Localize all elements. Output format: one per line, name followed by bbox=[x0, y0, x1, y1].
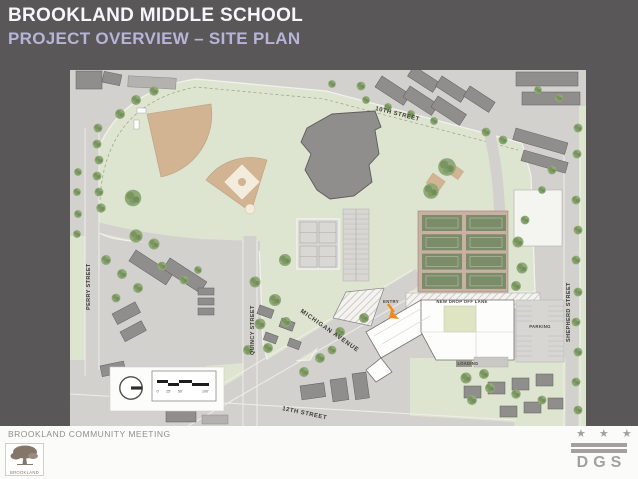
dgs-flag-bar-top bbox=[571, 443, 627, 447]
slide-subtitle: PROJECT OVERVIEW – SITE PLAN bbox=[8, 28, 303, 50]
street-label-quincy: QUINCY STREET bbox=[250, 305, 256, 355]
basketball-courts bbox=[297, 219, 339, 269]
scale-50: 50' bbox=[178, 390, 183, 394]
slide-header: BROOKLAND MIDDLE SCHOOL PROJECT OVERVIEW… bbox=[8, 4, 303, 50]
label-parking: PARKING bbox=[529, 324, 551, 329]
right-parking-lot bbox=[516, 300, 564, 362]
tennis-courts bbox=[418, 211, 508, 292]
center-parking bbox=[343, 209, 369, 281]
slide-title: BROOKLAND MIDDLE SCHOOL bbox=[8, 4, 303, 28]
legend: 0' 25' 50' 100' bbox=[110, 367, 224, 411]
dgs-flag-bar-bottom bbox=[571, 449, 627, 453]
scale-0: 0' bbox=[157, 390, 160, 394]
scale-bar: 0' 25' 50' 100' bbox=[152, 371, 216, 401]
brookland-logo: BROOKLAND bbox=[5, 443, 44, 476]
dgs-logo: ★ ★ ★ DGS bbox=[571, 428, 627, 471]
dgs-logo-label: DGS bbox=[576, 455, 627, 471]
label-entry: ENTRY bbox=[383, 299, 399, 304]
slide: BROOKLAND MIDDLE SCHOOL PROJECT OVERVIEW… bbox=[0, 0, 638, 479]
scale-25: 25' bbox=[166, 390, 171, 394]
brookland-logo-label: BROOKLAND bbox=[6, 470, 43, 475]
street-label-perry: PERRY STREET bbox=[86, 263, 92, 310]
north-arrow-icon bbox=[120, 377, 142, 399]
scale-100: 100' bbox=[202, 390, 209, 394]
site-plan-map: 10TH STREET PERRY STREET QUINCY STREET M… bbox=[70, 70, 586, 426]
label-drop-off: NEW DROP OFF LANE bbox=[436, 299, 487, 304]
label-loading: LOADING bbox=[458, 361, 479, 366]
dgs-stars-icon: ★ ★ ★ bbox=[576, 428, 627, 441]
tree-icon bbox=[6, 444, 43, 466]
footer: BROOKLAND COMMUNITY MEETING BROOKLAND ★ … bbox=[0, 426, 638, 479]
meeting-text: BROOKLAND COMMUNITY MEETING bbox=[8, 429, 171, 439]
site-plan-map-container: 10TH STREET PERRY STREET QUINCY STREET M… bbox=[70, 70, 586, 426]
street-label-shepherd: SHEPHERD STREET bbox=[566, 282, 572, 342]
